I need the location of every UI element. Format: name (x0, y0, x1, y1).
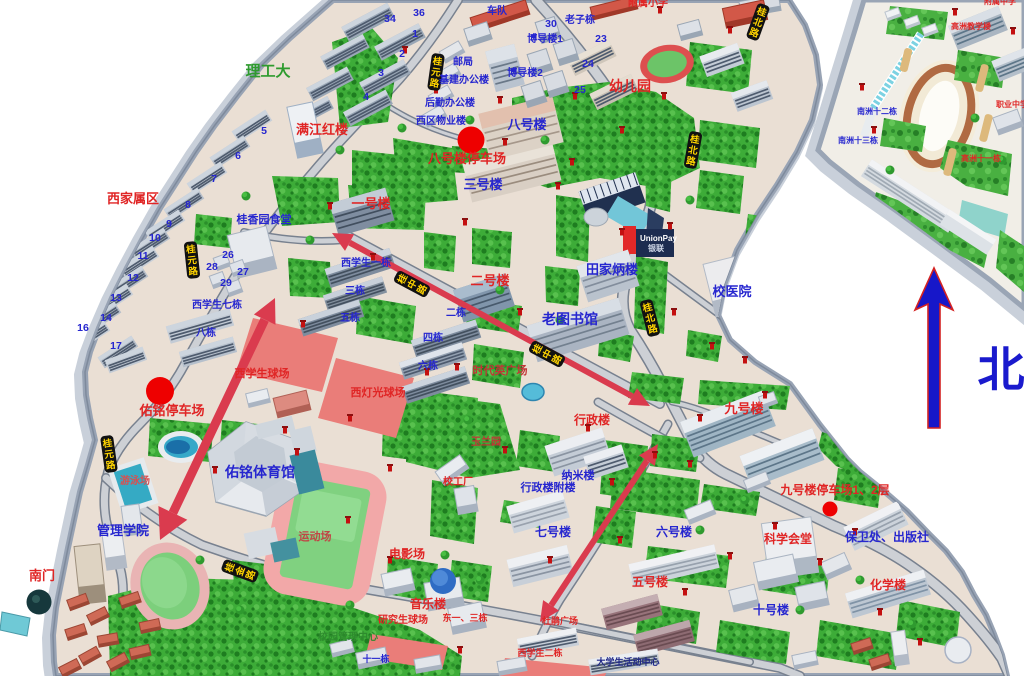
svg-text:老子栋: 老子栋 (564, 13, 595, 26)
svg-text:八号楼停车场: 八号楼停车场 (427, 151, 506, 166)
svg-text:西学生二栋: 西学生二栋 (517, 647, 562, 658)
svg-text:桂: 桂 (185, 243, 197, 256)
svg-text:8: 8 (185, 199, 191, 211)
svg-text:29: 29 (220, 277, 232, 289)
svg-text:34: 34 (384, 13, 396, 25)
svg-text:五号楼: 五号楼 (632, 574, 668, 589)
svg-text:25: 25 (574, 84, 586, 96)
svg-text:十一栋: 十一栋 (362, 653, 389, 664)
svg-text:田家炳楼: 田家炳楼 (586, 262, 638, 277)
svg-text:北: 北 (978, 343, 1024, 396)
svg-text:16: 16 (77, 322, 89, 334)
svg-text:八号楼: 八号楼 (506, 117, 546, 132)
svg-text:西学生七栋: 西学生七栋 (192, 298, 242, 311)
svg-text:11: 11 (137, 250, 148, 262)
svg-text:36: 36 (413, 7, 425, 19)
svg-text:4: 4 (363, 91, 369, 103)
svg-text:9: 9 (166, 218, 172, 230)
svg-text:大学生活动中心: 大学生活动中心 (596, 656, 659, 667)
svg-text:6: 6 (235, 150, 241, 162)
svg-text:九号楼停车场1、2层: 九号楼停车场1、2层 (779, 482, 889, 497)
svg-text:附属中学: 附属中学 (984, 0, 1016, 6)
svg-text:5: 5 (261, 125, 267, 137)
svg-text:24: 24 (582, 58, 594, 70)
svg-text:行政楼附楼: 行政楼附楼 (520, 480, 576, 494)
svg-text:二号楼: 二号楼 (470, 273, 509, 288)
svg-text:南洲十三栋: 南洲十三栋 (838, 135, 878, 145)
svg-text:化学楼: 化学楼 (870, 577, 906, 592)
svg-text:游泳场: 游泳场 (120, 474, 150, 487)
svg-text:博导楼2: 博导楼2 (507, 66, 543, 79)
svg-text:14: 14 (100, 312, 112, 324)
svg-text:路: 路 (188, 265, 199, 278)
svg-text:南门: 南门 (29, 568, 55, 583)
svg-text:理工大: 理工大 (245, 62, 290, 80)
svg-text:高洲教学楼: 高洲教学楼 (951, 21, 991, 31)
svg-text:四栋: 四栋 (423, 331, 443, 344)
svg-text:7: 7 (211, 173, 217, 185)
svg-text:杜鹃广场: 杜鹃广场 (542, 615, 578, 626)
svg-text:23: 23 (595, 33, 607, 45)
svg-text:后勤办公楼: 后勤办公楼 (425, 96, 475, 109)
svg-text:UnionPay: UnionPay (640, 234, 677, 243)
svg-text:九号楼: 九号楼 (723, 401, 763, 416)
svg-text:30: 30 (545, 18, 557, 30)
svg-text:邮局: 邮局 (453, 55, 473, 68)
svg-text:科学会堂: 科学会堂 (764, 531, 812, 546)
svg-text:基建办公楼: 基建办公楼 (438, 73, 489, 86)
svg-text:音乐楼: 音乐楼 (410, 596, 446, 611)
svg-text:13: 13 (110, 292, 122, 304)
svg-text:职业中学: 职业中学 (996, 99, 1024, 109)
svg-text:满江红楼: 满江红楼 (296, 122, 348, 137)
svg-text:12: 12 (127, 272, 139, 284)
svg-text:佑铭停车场: 佑铭停车场 (138, 403, 204, 418)
svg-text:车队: 车队 (487, 4, 508, 17)
svg-text:三栋: 三栋 (345, 284, 365, 297)
svg-text:附属小学: 附属小学 (628, 0, 668, 9)
svg-text:三号楼: 三号楼 (463, 177, 502, 192)
svg-text:幼儿园: 幼儿园 (609, 78, 651, 94)
svg-text:管理学院: 管理学院 (97, 523, 149, 538)
svg-text:南洲十二栋: 南洲十二栋 (857, 106, 897, 116)
svg-text:保卫处、出版社: 保卫处、出版社 (844, 529, 929, 544)
svg-text:桂香园食堂: 桂香园食堂 (236, 212, 292, 226)
svg-text:纳米楼: 纳米楼 (562, 468, 595, 482)
svg-text:10: 10 (149, 232, 161, 244)
svg-text:五栋: 五栋 (340, 311, 360, 324)
svg-text:校工厂: 校工厂 (443, 475, 473, 488)
svg-text:十号楼: 十号楼 (753, 602, 789, 617)
svg-text:博导楼1: 博导楼1 (527, 32, 563, 45)
svg-text:二栋: 二栋 (446, 306, 466, 319)
svg-text:电影场: 电影场 (389, 546, 425, 561)
svg-text:28: 28 (206, 261, 218, 273)
svg-text:佑铭体育馆: 佑铭体育馆 (224, 464, 295, 480)
svg-text:高洲十一栋: 高洲十一栋 (961, 153, 1001, 163)
svg-text:西学生一栋: 西学生一栋 (341, 256, 391, 269)
svg-text:东一、三栋: 东一、三栋 (442, 612, 487, 623)
svg-text:3: 3 (378, 67, 384, 79)
svg-text:老图书馆: 老图书馆 (542, 311, 598, 327)
svg-text:西区物业楼: 西区物业楼 (416, 114, 466, 127)
svg-text:七号楼: 七号楼 (535, 524, 571, 539)
svg-text:一号楼: 一号楼 (351, 196, 390, 211)
svg-text:17: 17 (110, 340, 122, 352)
svg-text:1: 1 (412, 28, 418, 40)
svg-text:运动场: 运动场 (299, 529, 332, 543)
svg-text:西学生球场: 西学生球场 (235, 366, 290, 380)
svg-text:校园管理中心: 校园管理中心 (318, 630, 378, 643)
svg-text:西家属区: 西家属区 (107, 191, 159, 206)
svg-text:行政楼: 行政楼 (573, 412, 610, 427)
svg-text:校医院: 校医院 (712, 284, 751, 299)
svg-text:西灯光球场: 西灯光球场 (351, 385, 406, 399)
svg-text:27: 27 (237, 266, 249, 278)
svg-text:六号楼: 六号楼 (656, 524, 692, 539)
svg-text:八栋: 八栋 (195, 326, 216, 339)
svg-text:26: 26 (222, 249, 234, 261)
svg-text:2: 2 (399, 48, 405, 60)
svg-text:玉兰园: 玉兰园 (471, 435, 501, 448)
svg-text:时代英广场: 时代英广场 (473, 363, 528, 377)
svg-text:研究生球场: 研究生球场 (378, 613, 428, 626)
svg-text:银联: 银联 (647, 243, 664, 253)
svg-text:六栋: 六栋 (418, 359, 438, 372)
